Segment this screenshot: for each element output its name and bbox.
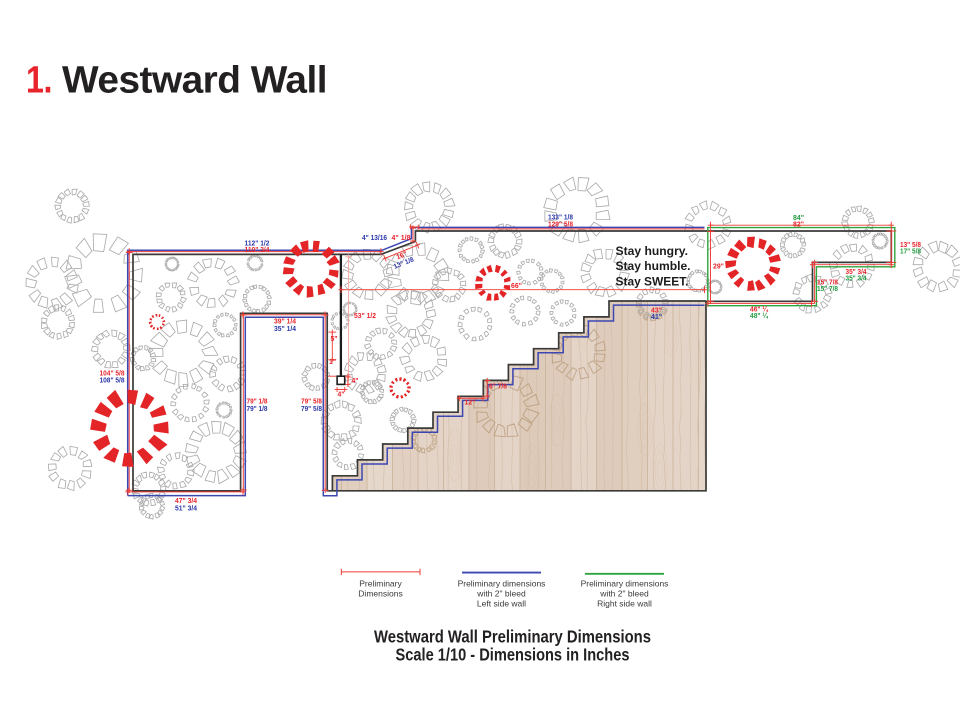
svg-text:35" 3/4: 35" 3/4	[846, 275, 867, 282]
svg-text:Left side wall: Left side wall	[477, 599, 526, 609]
svg-text:47" 3/4: 47" 3/4	[175, 498, 197, 505]
svg-text:1": 1"	[329, 359, 336, 366]
svg-text:53" 1/2: 53" 1/2	[354, 313, 376, 320]
svg-text:108" 5/8: 108" 5/8	[100, 377, 125, 384]
svg-text:29": 29"	[713, 264, 724, 271]
svg-text:15" 7/8: 15" 7/8	[817, 286, 838, 293]
svg-text:17" 5/8: 17" 5/8	[900, 249, 921, 256]
svg-text:1.Westward Wall: 1.Westward Wall	[26, 60, 327, 102]
svg-text:133" 1/8: 133" 1/8	[548, 214, 573, 221]
svg-text:Preliminary dimensions: Preliminary dimensions	[458, 579, 546, 589]
svg-text:129" 5/8: 129" 5/8	[548, 221, 573, 228]
svg-text:79" 5/8: 79" 5/8	[301, 406, 322, 413]
svg-text:Stay SWEET.: Stay SWEET.	[616, 276, 689, 288]
svg-text:79" 5/8: 79" 5/8	[301, 399, 322, 406]
svg-text:6" 7/8: 6" 7/8	[489, 384, 507, 391]
svg-text:48" ¼: 48" ¼	[750, 312, 769, 320]
svg-text:Preliminary: Preliminary	[359, 579, 402, 589]
svg-text:Right side wall: Right side wall	[597, 599, 652, 609]
svg-text:66": 66"	[511, 283, 522, 290]
svg-text:12": 12"	[465, 400, 476, 407]
svg-text:4": 4"	[351, 378, 358, 385]
svg-text:Stay hungry.: Stay hungry.	[616, 246, 689, 258]
svg-text:Westward Wall Preliminary Dime: Westward Wall Preliminary Dimensions	[374, 627, 651, 647]
svg-text:110" 3/4: 110" 3/4	[245, 247, 270, 254]
svg-text:4" 13/16: 4" 13/16	[362, 235, 387, 242]
svg-text:Scale 1/10 - Dimensions in Inc: Scale 1/10 - Dimensions in Inches	[396, 645, 630, 665]
svg-text:104" 5/8: 104" 5/8	[100, 370, 125, 377]
svg-text:79" 1/8: 79" 1/8	[247, 406, 268, 413]
svg-text:41": 41"	[651, 314, 662, 321]
svg-text:39" 1/4: 39" 1/4	[274, 318, 296, 325]
svg-text:79" 1/8: 79" 1/8	[247, 399, 268, 406]
svg-text:35" 1/4: 35" 1/4	[274, 326, 296, 333]
svg-text:5": 5"	[330, 336, 337, 343]
svg-text:Preliminary dimensions: Preliminary dimensions	[581, 579, 669, 589]
svg-text:82": 82"	[793, 222, 804, 229]
svg-text:with 2" bleed: with 2" bleed	[476, 589, 526, 599]
svg-text:Dimensions: Dimensions	[358, 589, 402, 599]
svg-text:with 2" bleed: with 2" bleed	[599, 589, 649, 599]
svg-text:4" 1/8: 4" 1/8	[392, 235, 411, 242]
svg-text:4": 4"	[337, 391, 344, 398]
svg-text:51" 3/4: 51" 3/4	[175, 506, 197, 513]
svg-text:Stay humble.: Stay humble.	[616, 261, 691, 273]
